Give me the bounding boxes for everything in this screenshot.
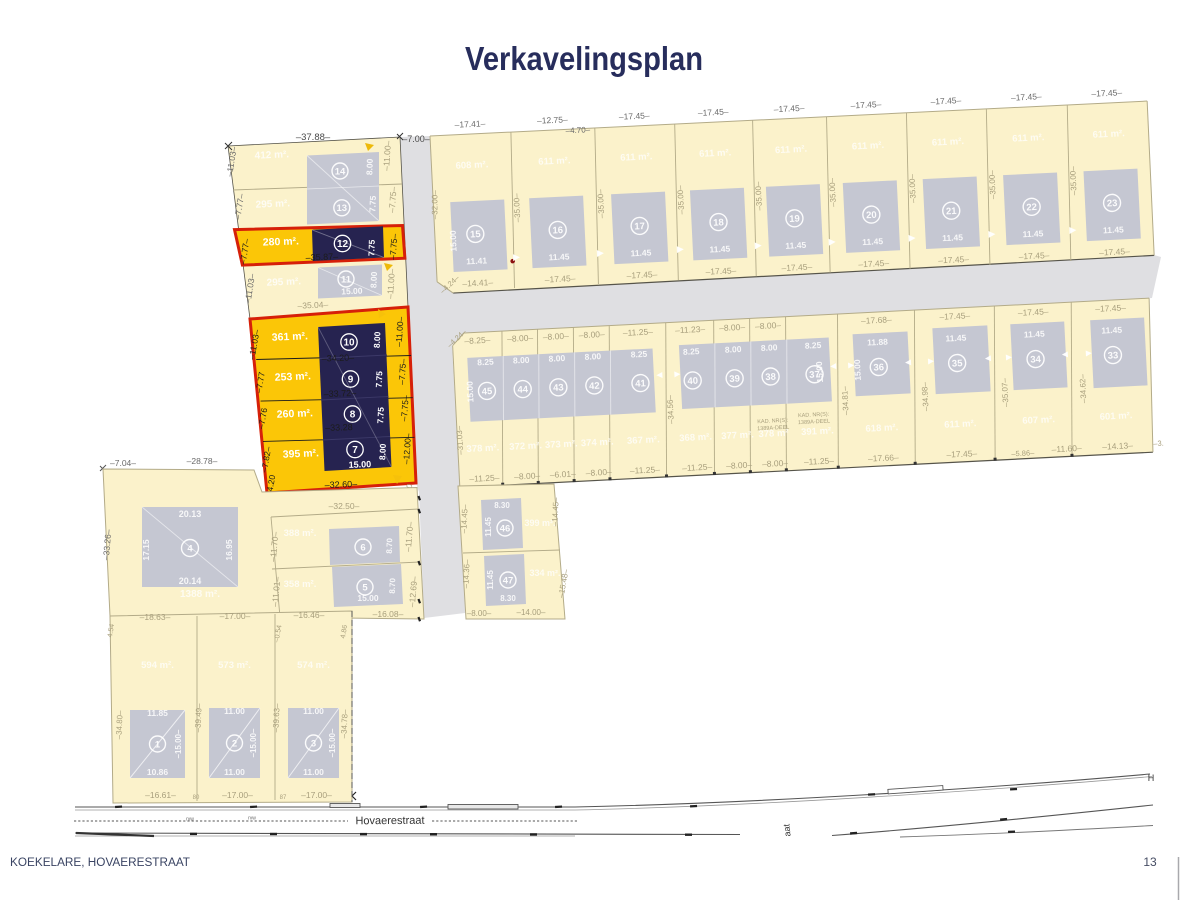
svg-text:–11.25–: –11.25–: [623, 326, 654, 338]
svg-text:–11.00–: –11.00–: [385, 268, 397, 299]
svg-text:–18.63–: –18.63–: [140, 612, 171, 622]
svg-text:11.45: 11.45: [862, 236, 884, 247]
svg-text:–7.04–: –7.04–: [110, 458, 136, 468]
svg-text:21: 21: [946, 206, 958, 218]
svg-text:8.00: 8.00: [513, 355, 530, 366]
svg-text:8.70: 8.70: [385, 537, 395, 553]
svg-text:10: 10: [343, 338, 355, 349]
svg-text:–32.60–: –32.60–: [324, 479, 357, 490]
svg-text:34: 34: [1030, 354, 1042, 366]
svg-text:–7.75–: –7.75–: [399, 395, 411, 422]
svg-text:358 m².: 358 m².: [284, 579, 317, 590]
svg-text:611 m².: 611 m².: [538, 155, 571, 168]
svg-text:–14.45–: –14.45–: [550, 497, 561, 527]
svg-text:412 m².: 412 m².: [254, 149, 289, 162]
svg-text:11.45: 11.45: [1024, 329, 1046, 340]
svg-text:16.95: 16.95: [224, 539, 234, 561]
svg-text:611 m².: 611 m².: [944, 418, 977, 431]
svg-text:611 m².: 611 m².: [699, 147, 732, 160]
svg-text:11.45: 11.45: [942, 232, 964, 243]
svg-text:–11.25–: –11.25–: [804, 455, 835, 467]
svg-text:14: 14: [335, 166, 346, 177]
svg-text:–35.00–: –35.00–: [1068, 166, 1078, 196]
svg-text:39: 39: [729, 373, 740, 385]
svg-text:11.45: 11.45: [548, 251, 570, 262]
svg-text:15.00: 15.00: [348, 459, 371, 470]
svg-text:–17.45–: –17.45–: [850, 99, 881, 110]
svg-text:8.00: 8.00: [548, 353, 565, 364]
svg-text:11.88: 11.88: [867, 336, 889, 347]
svg-text:–11.00–: –11.00–: [381, 140, 393, 171]
svg-text:2: 2: [232, 738, 237, 749]
svg-text:–32.00–: –32.00–: [430, 190, 439, 220]
svg-text:–11.25–: –11.25–: [682, 462, 713, 474]
svg-text:8.00: 8.00: [368, 271, 379, 288]
svg-text:8.00: 8.00: [725, 344, 742, 355]
svg-text:–11.60–: –11.60–: [1051, 443, 1082, 455]
svg-text:1: 1: [155, 739, 161, 750]
svg-text:–17.45–: –17.45–: [930, 95, 961, 106]
svg-text:15: 15: [470, 229, 482, 241]
svg-text:4: 4: [187, 543, 193, 554]
svg-text:15.00: 15.00: [814, 361, 825, 383]
svg-text:–31.03–: –31.03–: [455, 425, 465, 455]
svg-text:7.75: 7.75: [375, 407, 386, 424]
svg-text:8.25: 8.25: [630, 349, 647, 360]
svg-text:–35.00–: –35.00–: [676, 185, 686, 215]
svg-text:391 m².: 391 m².: [801, 425, 834, 438]
svg-text:–14.45–: –14.45–: [459, 504, 470, 534]
svg-text:–17.00–: –17.00–: [301, 790, 332, 800]
svg-text:–28.78–: –28.78–: [187, 456, 218, 466]
svg-text:–34.62–: –34.62–: [1078, 373, 1088, 403]
svg-text:295 m².: 295 m².: [255, 198, 290, 211]
svg-text:–17.66–: –17.66–: [868, 452, 899, 464]
svg-text:–16.08–: –16.08–: [373, 609, 404, 619]
svg-text:253 m².: 253 m².: [275, 370, 312, 384]
svg-text:17: 17: [634, 221, 645, 233]
svg-text:11.45: 11.45: [630, 247, 652, 258]
svg-text:–17.45–: –17.45–: [1091, 87, 1122, 98]
svg-text:–7.75–: –7.75–: [387, 186, 399, 213]
svg-text:–34.81–: –34.81–: [840, 386, 850, 416]
svg-text:378 m².: 378 m².: [466, 442, 499, 455]
svg-text:–14.00–: –14.00–: [517, 608, 546, 617]
svg-text:40: 40: [687, 376, 698, 388]
svg-text:–32.50–: –32.50–: [329, 501, 360, 511]
svg-text:618 m².: 618 m².: [865, 422, 898, 435]
svg-text:–35.87–: –35.87–: [305, 251, 338, 262]
svg-text:–15.00–: –15.00–: [249, 728, 258, 757]
svg-text:361 m².: 361 m².: [272, 330, 309, 344]
svg-text:17.15: 17.15: [141, 539, 151, 561]
svg-text:45: 45: [481, 386, 493, 398]
svg-text:–8.00–: –8.00–: [514, 470, 541, 481]
svg-text:–8.00–: –8.00–: [726, 460, 753, 471]
svg-text:33: 33: [1107, 350, 1118, 362]
svg-text:7: 7: [352, 445, 358, 456]
svg-text:–39.49–: –39.49–: [193, 703, 204, 733]
svg-text:–34.56–: –34.56–: [665, 394, 675, 424]
svg-text:8.00: 8.00: [364, 158, 375, 175]
svg-text:43: 43: [553, 382, 564, 394]
svg-text:15.00: 15.00: [357, 593, 379, 603]
svg-text:KOEKELARE, HOVAERESTRAAT: KOEKELARE, HOVAERESTRAAT: [10, 855, 190, 869]
svg-text:–6.01–: –6.01–: [550, 468, 577, 479]
svg-text:aat: aat: [781, 823, 792, 837]
svg-text:611 m².: 611 m².: [932, 136, 965, 149]
svg-text:11.45: 11.45: [486, 570, 495, 590]
svg-text:–15.00–: –15.00–: [328, 728, 337, 757]
svg-text:–17.45–: –17.45–: [938, 254, 969, 265]
svg-text:395 m².: 395 m².: [283, 447, 320, 461]
svg-text:8: 8: [350, 410, 356, 421]
svg-text:–17.45–: –17.45–: [781, 262, 812, 273]
svg-text:87: 87: [280, 795, 287, 801]
svg-text:8.00: 8.00: [377, 443, 388, 460]
svg-text:38: 38: [765, 372, 776, 384]
svg-text:11.00: 11.00: [224, 767, 245, 777]
svg-text:41: 41: [635, 378, 647, 390]
svg-text:–17.45–: –17.45–: [946, 448, 977, 460]
svg-text:–17.45–: –17.45–: [705, 265, 736, 276]
svg-text:611 m².: 611 m².: [775, 144, 808, 157]
svg-text:–35.07–: –35.07–: [1000, 377, 1010, 407]
svg-text:367 m².: 367 m².: [627, 434, 660, 447]
svg-text:7.75: 7.75: [374, 371, 385, 388]
svg-text:rvw: rvw: [248, 816, 256, 822]
svg-text:8.25: 8.25: [477, 357, 494, 368]
svg-text:20: 20: [866, 210, 877, 222]
svg-text:10.86: 10.86: [147, 767, 169, 777]
svg-text:–14.13–: –14.13–: [1102, 440, 1133, 452]
svg-text:–17.45–: –17.45–: [858, 258, 889, 269]
svg-text:11.45: 11.45: [709, 244, 731, 255]
svg-text:–35.00–: –35.00–: [828, 177, 838, 207]
svg-text:20.13: 20.13: [179, 509, 202, 519]
svg-text:23: 23: [1107, 198, 1118, 210]
svg-text:36: 36: [873, 362, 884, 374]
svg-text:–8.00–: –8.00–: [586, 467, 613, 478]
svg-text:8.00: 8.00: [372, 331, 383, 348]
svg-text:–34.78–: –34.78–: [339, 709, 350, 739]
svg-text:–5.86–: –5.86–: [1011, 448, 1035, 458]
svg-text:–37.88–: –37.88–: [296, 132, 331, 143]
svg-text:–17.45–: –17.45–: [1099, 246, 1130, 257]
svg-text:–17.45–: –17.45–: [1011, 91, 1042, 102]
svg-text:13: 13: [337, 203, 348, 214]
svg-text:12: 12: [337, 239, 349, 250]
svg-text:8.70: 8.70: [388, 577, 398, 593]
svg-text:–4.70–: –4.70–: [565, 125, 590, 135]
svg-text:388 m².: 388 m².: [284, 528, 317, 539]
svg-text:–8.00–: –8.00–: [755, 320, 782, 331]
svg-text:334 m².: 334 m².: [529, 568, 560, 578]
svg-text:–11.25–: –11.25–: [630, 464, 661, 476]
svg-text:368 m².: 368 m².: [679, 432, 712, 445]
svg-text:608 m².: 608 m².: [455, 159, 488, 172]
svg-text:–17.68–: –17.68–: [861, 314, 892, 326]
svg-text:15.00: 15.00: [341, 286, 363, 297]
svg-text:–33.28: –33.28: [325, 422, 353, 433]
svg-text:–17.45–: –17.45–: [619, 110, 650, 121]
svg-text:–11.25–: –11.25–: [469, 472, 500, 484]
svg-text:16: 16: [552, 225, 563, 237]
svg-text:377 m².: 377 m².: [721, 429, 754, 442]
svg-text:–39.63–: –39.63–: [271, 703, 282, 733]
svg-text:8.30: 8.30: [494, 501, 510, 510]
svg-text:15.00: 15.00: [448, 230, 459, 252]
svg-text:13: 13: [1143, 855, 1157, 869]
svg-text:Verkavelingsplan: Verkavelingsplan: [465, 40, 703, 77]
svg-text:–8.00–: –8.00–: [467, 609, 492, 618]
svg-text:5: 5: [362, 582, 368, 593]
svg-text:18: 18: [713, 217, 724, 229]
svg-text:–15.00–: –15.00–: [174, 729, 183, 758]
svg-text:11.45: 11.45: [945, 332, 967, 343]
svg-text:8.25: 8.25: [805, 340, 822, 351]
svg-text:11.45: 11.45: [484, 517, 493, 537]
svg-text:–34.20–: –34.20–: [321, 352, 354, 363]
svg-text:–11.00–: –11.00–: [393, 316, 405, 347]
svg-text:–17.45–: –17.45–: [545, 273, 576, 284]
svg-text:22: 22: [1026, 202, 1037, 214]
svg-text:607 m².: 607 m².: [1022, 414, 1055, 427]
svg-text:20.14: 20.14: [179, 576, 202, 586]
svg-text:574 m².: 574 m².: [297, 660, 330, 671]
svg-text:7.75: 7.75: [367, 195, 378, 212]
svg-text:–35.04–: –35.04–: [297, 299, 328, 310]
svg-text:–8.00–: –8.00–: [507, 332, 534, 343]
svg-text:42: 42: [589, 381, 600, 393]
svg-text:46: 46: [500, 523, 511, 534]
svg-text:611 m².: 611 m².: [1092, 128, 1125, 141]
svg-text:–34.80–: –34.80–: [114, 710, 125, 740]
svg-text:6: 6: [360, 542, 365, 553]
svg-text:19: 19: [789, 214, 800, 226]
svg-text:80: 80: [193, 795, 200, 801]
svg-text:11.45: 11.45: [1022, 228, 1044, 239]
svg-text:–7.00–: –7.00–: [402, 134, 430, 144]
svg-text:11.41: 11.41: [466, 255, 488, 266]
svg-text:11: 11: [341, 274, 352, 285]
svg-text:–17.45–: –17.45–: [1095, 302, 1126, 314]
svg-text:–17.00–: –17.00–: [220, 611, 251, 621]
svg-text:11.00: 11.00: [224, 706, 245, 716]
svg-text:611 m².: 611 m².: [620, 151, 653, 164]
svg-text:11.45: 11.45: [785, 240, 807, 251]
svg-text:–35.00–: –35.00–: [754, 181, 764, 211]
svg-text:573 m².: 573 m².: [218, 660, 251, 671]
svg-text:280 m².: 280 m².: [263, 235, 300, 248]
svg-text:–33.72–: –33.72–: [323, 388, 356, 399]
svg-text:–17.45–: –17.45–: [773, 103, 804, 114]
svg-text:11.45: 11.45: [1103, 224, 1125, 235]
svg-text:7.75: 7.75: [366, 239, 377, 256]
svg-text:–8.00–: –8.00–: [543, 331, 570, 342]
svg-text:–8.25–: –8.25–: [464, 335, 491, 346]
svg-text:–17.45–: –17.45–: [698, 106, 729, 117]
svg-text:–35.00–: –35.00–: [596, 189, 606, 219]
svg-text:rvw: rvw: [186, 817, 194, 823]
svg-text:611 m².: 611 m².: [1012, 132, 1045, 145]
svg-text:–14.36–: –14.36–: [461, 559, 472, 589]
svg-text:–17.41–: –17.41–: [454, 118, 485, 129]
svg-text:–16.61–: –16.61–: [145, 790, 176, 800]
svg-text:H: H: [1148, 773, 1155, 783]
svg-text:373 m².: 373 m².: [545, 438, 578, 451]
svg-text:8.00: 8.00: [584, 351, 601, 362]
svg-text:8.00: 8.00: [761, 342, 778, 353]
svg-text:1388 m².: 1388 m².: [180, 589, 220, 600]
svg-text:11.45: 11.45: [1101, 325, 1123, 336]
svg-text:Hovaerestraat: Hovaerestraat: [355, 815, 424, 828]
svg-text:35: 35: [952, 358, 964, 370]
svg-text:–17.45–: –17.45–: [1018, 306, 1049, 318]
svg-text:–7.75–: –7.75–: [396, 358, 408, 385]
svg-text:15.00: 15.00: [852, 359, 863, 381]
svg-text:–35.00–: –35.00–: [987, 169, 997, 199]
svg-text:–8.00–: –8.00–: [762, 458, 789, 469]
svg-text:374 m².: 374 m².: [581, 437, 614, 450]
svg-text:44: 44: [517, 384, 529, 396]
svg-text:–35.00–: –35.00–: [512, 193, 522, 223]
svg-text:–8.00–: –8.00–: [579, 329, 606, 340]
svg-text:–17.45–: –17.45–: [626, 269, 657, 280]
svg-text:–12.75–: –12.75–: [537, 114, 568, 125]
svg-text:11.00: 11.00: [303, 767, 324, 777]
svg-text:601 m².: 601 m².: [1099, 410, 1132, 423]
svg-text:372 m².: 372 m².: [509, 440, 542, 453]
svg-text:260 m².: 260 m².: [277, 407, 314, 421]
svg-text:594 m².: 594 m².: [141, 660, 174, 671]
svg-text:8.30: 8.30: [500, 594, 516, 603]
svg-text:15.00: 15.00: [464, 381, 475, 403]
svg-text:–17.45–: –17.45–: [1018, 250, 1049, 261]
svg-text:–8.00–: –8.00–: [719, 322, 746, 333]
svg-text:47: 47: [503, 575, 514, 586]
svg-text:–16.46–: –16.46–: [294, 610, 325, 620]
svg-text:–11.23–: –11.23–: [675, 324, 706, 336]
svg-text:11.00: 11.00: [303, 706, 324, 716]
svg-text:–7.75–: –7.75–: [388, 233, 400, 260]
svg-text:295 m².: 295 m².: [266, 276, 301, 289]
svg-text:3: 3: [311, 738, 316, 749]
svg-text:–35.00–: –35.00–: [907, 173, 917, 203]
svg-text:8.25: 8.25: [683, 346, 700, 357]
svg-text:–17.45–: –17.45–: [939, 310, 970, 322]
svg-text:9: 9: [348, 375, 354, 386]
svg-text:–14.41–: –14.41–: [462, 277, 493, 288]
svg-text:611 m².: 611 m².: [852, 140, 885, 153]
svg-text:–34.98–: –34.98–: [920, 381, 930, 411]
svg-text:11.85: 11.85: [147, 708, 168, 718]
svg-text:–17.00–: –17.00–: [222, 790, 253, 800]
svg-text:–3.: –3.: [1153, 439, 1164, 449]
